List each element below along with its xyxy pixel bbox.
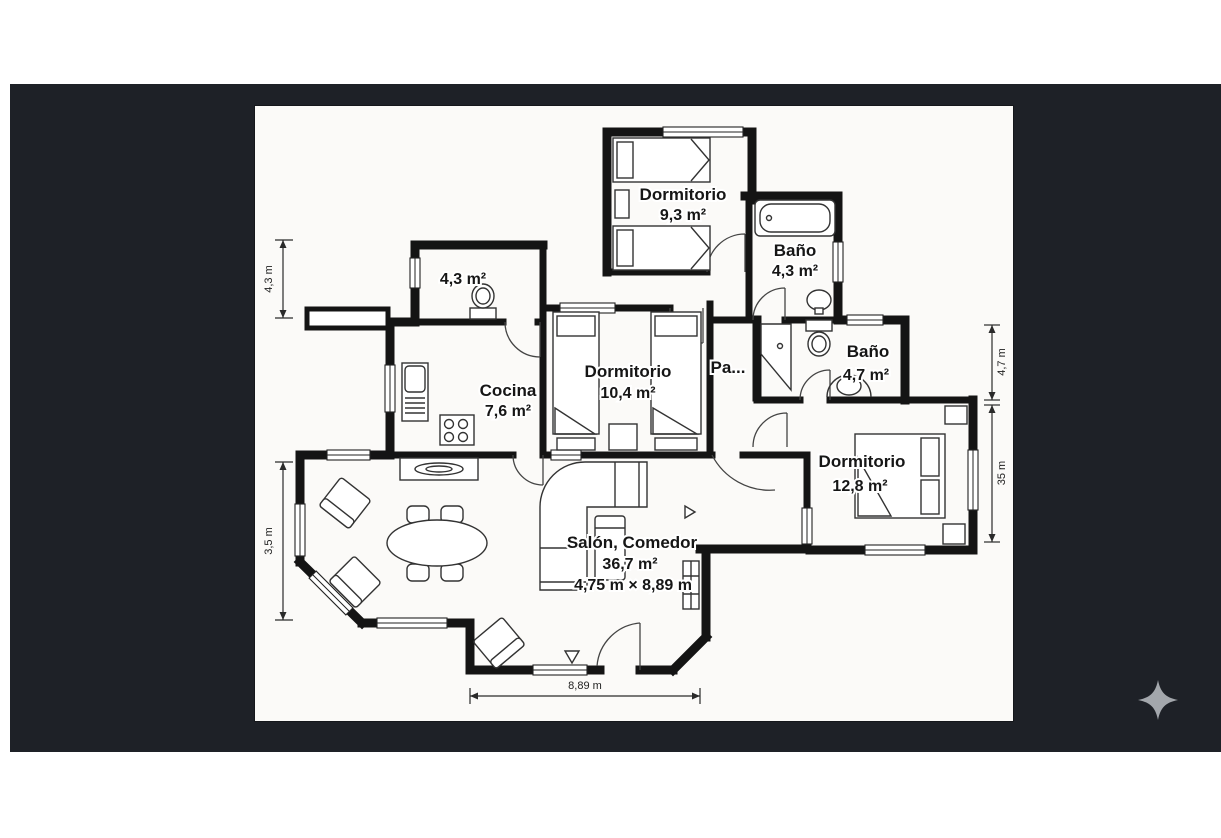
label-wc-area: 4,3 m² <box>440 271 486 288</box>
dimension-bottom: 8,89 m <box>470 680 700 704</box>
label-kitchen-area: 7,6 m² <box>485 403 531 420</box>
label-living-size: 4,75 m × 8,89 m <box>574 577 692 594</box>
dimension-right-bottom: 35 m <box>984 405 1008 542</box>
dimension-left-top: 4,3 m <box>263 240 293 318</box>
label-living-area: 36,7 m² <box>602 556 657 573</box>
label-bedroom-mid-name: Dormitorio <box>585 362 672 381</box>
furniture-bedroom-right <box>855 406 967 544</box>
entrance-marker-icon <box>565 651 579 663</box>
furniture-bedroom-top <box>613 138 710 270</box>
exterior-niche <box>307 309 388 328</box>
label-kitchen-name: Cocina <box>480 381 537 400</box>
dimension-left-bottom: 3,5 m <box>263 462 293 620</box>
floor-plan-canvas: Dormitorio 9,3 m² Baño 4,3 m² 4,3 m² Coc… <box>255 106 1013 721</box>
label-bedroom-right-name: Dormitorio <box>819 452 906 471</box>
label-hall-name: Pa... <box>711 358 746 377</box>
svg-text:4,3 m: 4,3 m <box>263 265 275 293</box>
label-bedroom-mid-area: 10,4 m² <box>600 385 655 402</box>
furniture-bedroom-mid <box>553 312 701 450</box>
label-bath-right-area: 4,7 m² <box>843 367 889 384</box>
label-bath-top-area: 4,3 m² <box>772 263 818 280</box>
furniture-kitchen <box>402 363 474 445</box>
svg-text:35 m: 35 m <box>996 461 1008 485</box>
svg-text:3,5 m: 3,5 m <box>263 527 275 555</box>
label-bedroom-top-area: 9,3 m² <box>660 207 706 224</box>
label-bath-top-name: Baño <box>774 241 817 260</box>
floor-plan-svg: Dormitorio 9,3 m² Baño 4,3 m² 4,3 m² Coc… <box>255 106 1013 721</box>
furniture-wc <box>470 284 496 319</box>
svg-text:4,7 m: 4,7 m <box>996 348 1008 376</box>
label-bath-right-name: Baño <box>847 342 890 361</box>
door-marker-icon <box>685 506 695 518</box>
label-living-name: Salón, Comedor <box>567 533 698 552</box>
dimension-right-top: 4,7 m <box>984 325 1008 400</box>
label-bedroom-top-name: Dormitorio <box>640 185 727 204</box>
sparkle-icon[interactable] <box>1136 678 1180 722</box>
label-bedroom-right-area: 12,8 m² <box>832 478 887 495</box>
svg-text:8,89 m: 8,89 m <box>568 680 602 692</box>
